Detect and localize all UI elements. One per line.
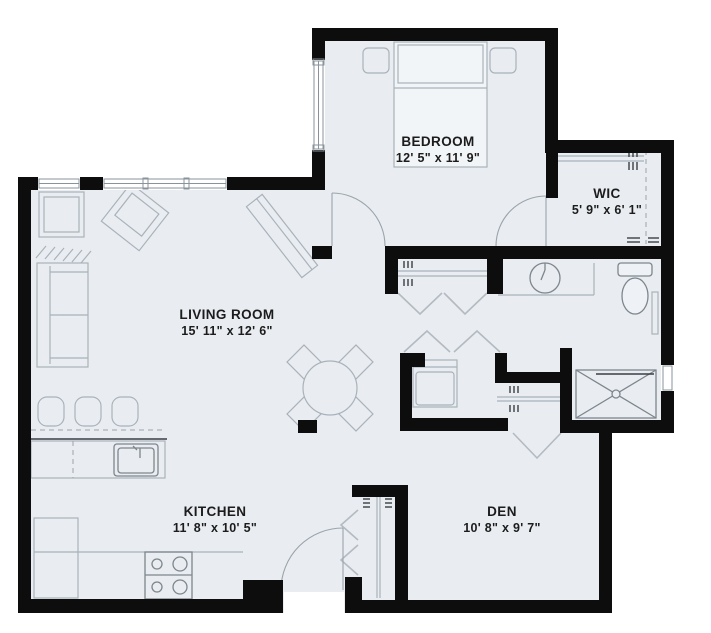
entry-threshold xyxy=(284,592,344,613)
den-dims: 10' 8" x 9' 7" xyxy=(463,521,541,535)
floor-area xyxy=(18,28,674,613)
bedroom-window xyxy=(312,59,325,151)
kitchen-dims: 11' 8" x 10' 5" xyxy=(173,521,257,535)
bedroom-dims: 12' 5" x 11' 9" xyxy=(396,151,480,165)
bath-window xyxy=(661,365,674,391)
den-label: DEN xyxy=(487,504,517,519)
wic-dims: 5' 9" x 6' 1" xyxy=(572,203,642,217)
living-room-label: LIVING ROOM xyxy=(179,307,274,322)
floor-plan-image: BEDROOM 12' 5" x 11' 9" WIC 5' 9" x 6' 1… xyxy=(0,0,711,633)
living-triple-window xyxy=(103,177,227,190)
floor-plan: BEDROOM 12' 5" x 11' 9" WIC 5' 9" x 6' 1… xyxy=(0,0,711,633)
bedroom-label: BEDROOM xyxy=(401,134,474,149)
wic-label: WIC xyxy=(593,186,620,201)
balcony-door-window xyxy=(38,177,80,190)
living-room-dims: 15' 11" x 12' 6" xyxy=(181,324,272,338)
kitchen-label: KITCHEN xyxy=(184,504,247,519)
